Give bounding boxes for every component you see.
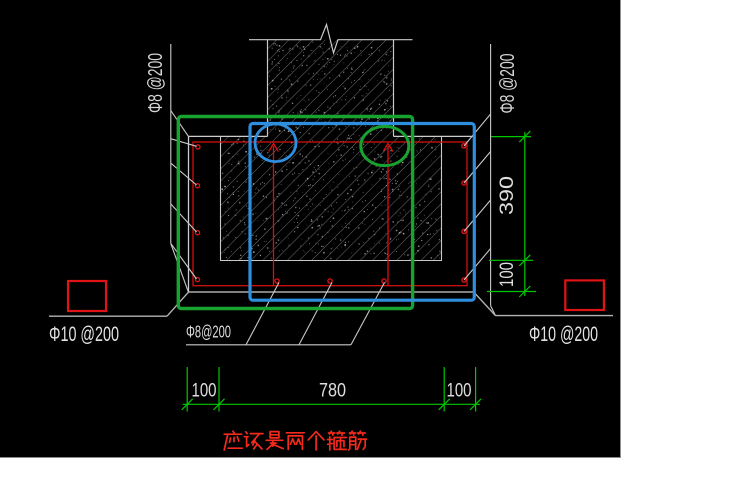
- svg-text:Φ8 @200: Φ8 @200: [497, 54, 519, 114]
- svg-text:Φ8@200: Φ8@200: [186, 322, 231, 342]
- svg-text:100: 100: [447, 381, 472, 402]
- svg-text:Φ10 @200: Φ10 @200: [49, 323, 119, 346]
- svg-text:100: 100: [192, 381, 217, 402]
- svg-text:390: 390: [497, 176, 518, 215]
- svg-text:100: 100: [497, 262, 518, 287]
- svg-text:780: 780: [319, 381, 346, 402]
- svg-text:Φ10 @200: Φ10 @200: [529, 323, 598, 346]
- svg-text:Φ8 @200: Φ8 @200: [145, 53, 167, 113]
